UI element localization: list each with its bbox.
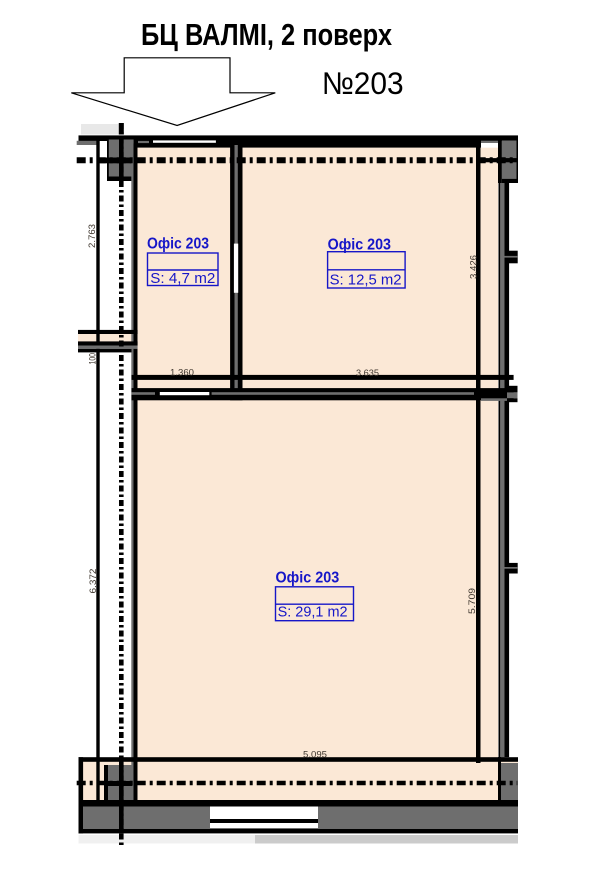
- svg-text:S: 4,7 m2: S: 4,7 m2: [150, 271, 215, 287]
- svg-text:S: 29,1 m2: S: 29,1 m2: [278, 605, 348, 621]
- svg-text:1.360: 1.360: [170, 368, 194, 379]
- svg-text:№203: №203: [322, 65, 404, 101]
- svg-text:5.709: 5.709: [467, 588, 478, 614]
- svg-text:Офіс 203: Офіс 203: [276, 570, 340, 587]
- svg-text:3.635: 3.635: [356, 368, 379, 379]
- svg-text:2.763: 2.763: [87, 224, 98, 248]
- svg-text:Офіс 203: Офіс 203: [147, 236, 209, 253]
- svg-text:6.372: 6.372: [88, 569, 99, 594]
- svg-text:100: 100: [88, 353, 99, 365]
- svg-text:5.095: 5.095: [303, 750, 327, 761]
- svg-text:Офіс 203: Офіс 203: [328, 237, 392, 254]
- svg-text:3.426: 3.426: [469, 255, 480, 279]
- svg-text:БЦ ВАЛМІ, 2 поверх: БЦ ВАЛМІ, 2 поверх: [141, 17, 393, 52]
- svg-text:S: 12,5 m2: S: 12,5 m2: [330, 273, 402, 289]
